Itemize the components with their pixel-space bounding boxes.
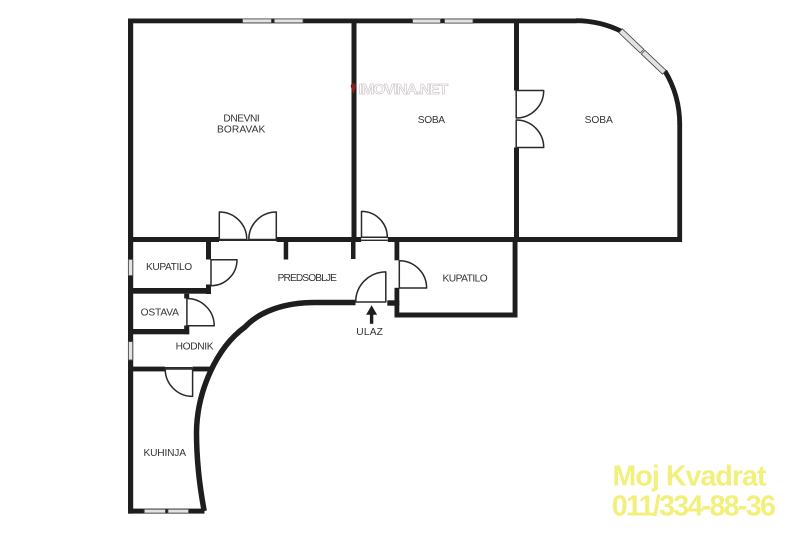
svg-text:BORAVAK: BORAVAK (217, 124, 266, 135)
svg-text:OSTAVA: OSTAVA (141, 308, 180, 319)
svg-text:ULAZ: ULAZ (356, 327, 383, 338)
svg-text:SOBA: SOBA (585, 115, 613, 126)
svg-text:DNEVNI: DNEVNI (223, 113, 259, 124)
svg-text:SOBA: SOBA (418, 115, 446, 126)
svg-text:PREDSOBLJE: PREDSOBLJE (278, 273, 338, 284)
svg-text:IMOVINA.NET: IMOVINA.NET (359, 81, 449, 98)
svg-text:KUPATILO: KUPATILO (146, 262, 192, 273)
svg-text:HODNIK: HODNIK (176, 342, 214, 353)
svg-text:KUHINJA: KUHINJA (144, 448, 187, 459)
svg-text:KUPATILO: KUPATILO (443, 273, 488, 284)
svg-text:011/334-88-36: 011/334-88-36 (612, 491, 776, 523)
svg-text:Moj Kvadrat: Moj Kvadrat (613, 460, 768, 492)
